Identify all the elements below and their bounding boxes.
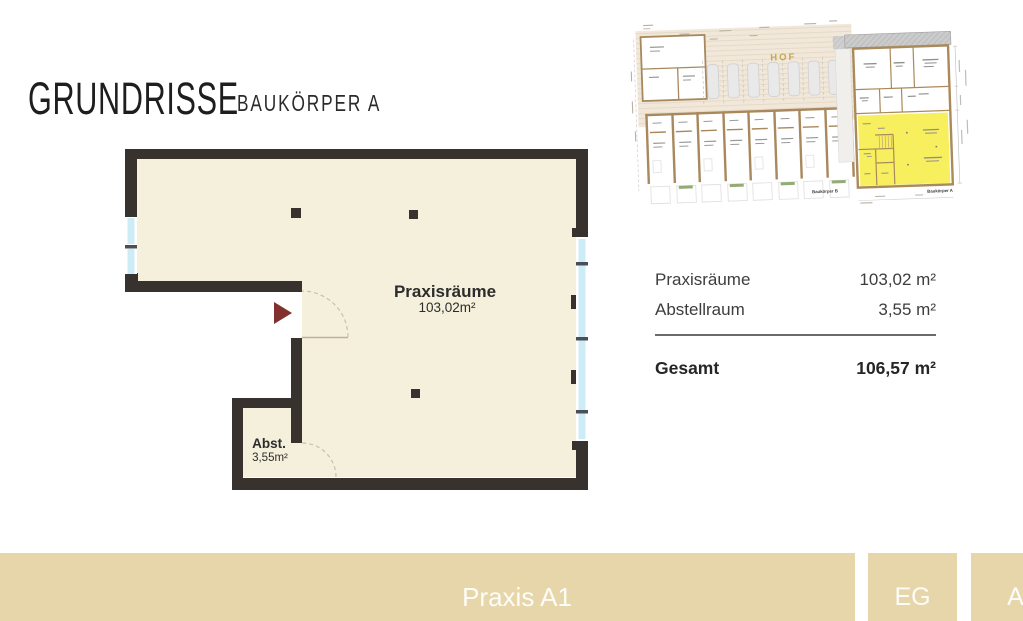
hof-label: HOF (770, 52, 796, 64)
baukoerper-b-label: Baukörper B (812, 188, 838, 194)
row-value: 103,02 m² (859, 270, 936, 292)
floorplan-floor (135, 159, 576, 477)
siteplan-building-a (845, 31, 971, 201)
room-area-praxisraeume: 103,02m² (418, 300, 476, 315)
room-area-abstellraum: 3,55m² (252, 452, 288, 464)
table-total-row: Gesamt 106,57 m² (655, 358, 936, 379)
siteplan-thumbnail: HOF (622, 5, 1012, 210)
floorplan-drawing: Praxisräume 103,02m² Abst. 3,55m² (125, 149, 588, 490)
table-row: Abstellraum 3,55 m² (655, 300, 936, 322)
room-label-abstellraum: Abst. (252, 436, 286, 451)
footer-bar: EG A Praxis A1 (0, 553, 1023, 621)
entrance-arrow-icon (274, 302, 292, 324)
footer-title: Praxis A1 (0, 553, 1023, 621)
page-title: GRUNDRISSE (28, 76, 239, 121)
total-label: Gesamt (655, 358, 719, 379)
row-value: 3,55 m² (878, 300, 936, 322)
total-value: 106,57 m² (856, 358, 936, 379)
baukoerper-a-label: Baukörper A (927, 188, 953, 194)
area-table: Praxisräume 103,02 m² Abstellraum 3,55 m… (655, 270, 936, 379)
page-subtitle: BAUKÖRPER A (237, 92, 381, 115)
siteplan-building-topleft (641, 35, 707, 101)
row-label: Praxisräume (655, 270, 750, 292)
room-label-praxisraeume: Praxisräume (394, 282, 496, 301)
table-divider (655, 334, 936, 336)
page: { "title": { "main": "GRUNDRISSE", "sub"… (0, 0, 1023, 621)
row-label: Abstellraum (655, 300, 745, 322)
table-row: Praxisräume 103,02 m² (655, 270, 936, 292)
